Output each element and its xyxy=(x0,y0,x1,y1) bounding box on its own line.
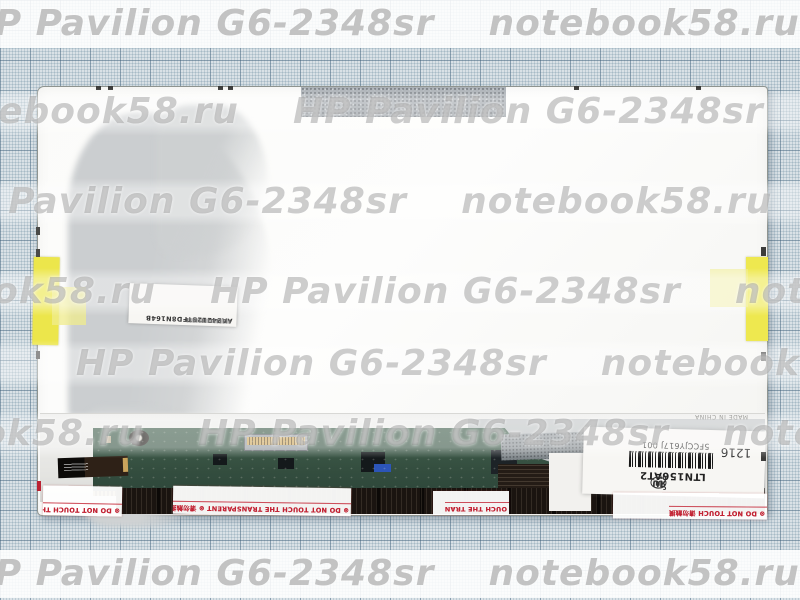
lvds-connector xyxy=(244,434,308,451)
flex-cable xyxy=(58,456,129,478)
warning-label-right: ⊗ DO NOT TOUCH 请勿触摸 ⊗ DO NOT TOUCH 请勿触摸 xyxy=(613,492,767,519)
panel-edge-tick xyxy=(761,452,766,461)
connector-pins xyxy=(247,437,305,445)
kapton-tape-right xyxy=(746,257,768,341)
kapton-tape-left-pale xyxy=(52,287,86,325)
ul-us: us xyxy=(659,474,667,481)
kapton-tape-right-pale xyxy=(710,269,748,307)
foil-sticker xyxy=(301,87,506,117)
warning-label-main: ⊗ DO NOT TOUCH THE TRANSPARENT ⊗ 请勿触摸 ⊗ … xyxy=(173,486,351,516)
cable-gold-tab xyxy=(123,458,128,472)
watermark-row: P Pavilion G6-2348sr notebook58.ru HP Pa… xyxy=(0,550,800,598)
panel-edge-tick xyxy=(228,86,233,90)
cable-label xyxy=(64,462,88,471)
watermark-row: P Pavilion G6-2348sr notebook58.ru HP Pa… xyxy=(0,0,800,48)
lcd-panel-back: AA24212STFD8N164B MADE IN CHINA LTN156AT… xyxy=(37,86,768,516)
barcode-label: AA24212STFD8N164B xyxy=(128,283,237,327)
panel-edge-tick xyxy=(574,86,579,90)
warning-label-fragment: OUCH THE TRAN OUCH THE TRAN xyxy=(433,491,509,515)
warning-label-left: ⊗ DO NOT TOUCH THE ⊗ DO NOT TOUCH THE xyxy=(43,485,123,516)
made-in-china-text: MADE IN CHINA xyxy=(688,413,748,420)
panel-edge-tick xyxy=(108,86,113,90)
panel-edge-tick xyxy=(36,351,40,359)
panel-edge-tick xyxy=(218,86,223,90)
date-code-text: 1216 xyxy=(711,445,751,460)
warning-text: ⊗ DO NOT TOUCH 请勿触摸 xyxy=(669,506,767,520)
photo-stage: AA24212STFD8N164B MADE IN CHINA LTN156AT… xyxy=(0,0,800,600)
certification-marks: ЯU c UL us xyxy=(606,472,666,492)
panel-edge-tick xyxy=(696,86,701,90)
warning-text: ⊗ DO NOT TOUCH THE TRANSPARENT ⊗ 请勿触摸 xyxy=(173,501,351,517)
warning-text: ⊗ DO NOT TOUCH THE xyxy=(43,502,122,517)
part-number-text: 5FCCJY617J 001 xyxy=(609,439,709,451)
barcode xyxy=(629,451,713,469)
ic-chip xyxy=(278,458,294,469)
panel-edge-tick xyxy=(36,227,40,235)
warning-text: OUCH THE TRAN xyxy=(445,502,509,515)
ic-chip xyxy=(361,452,385,472)
ic-chip xyxy=(213,454,227,465)
panel-edge-tick xyxy=(96,86,101,90)
inductor-coil xyxy=(129,430,149,446)
edge-red-mark xyxy=(37,481,41,491)
panel-edge-tick xyxy=(761,352,766,361)
panel-edge-tick xyxy=(36,249,40,257)
info-label: LTN156AT2 5FCCJY617J 001 1216 ЯU c UL us xyxy=(582,427,766,499)
panel-edge-tick xyxy=(761,247,766,256)
blue-component xyxy=(374,464,391,472)
